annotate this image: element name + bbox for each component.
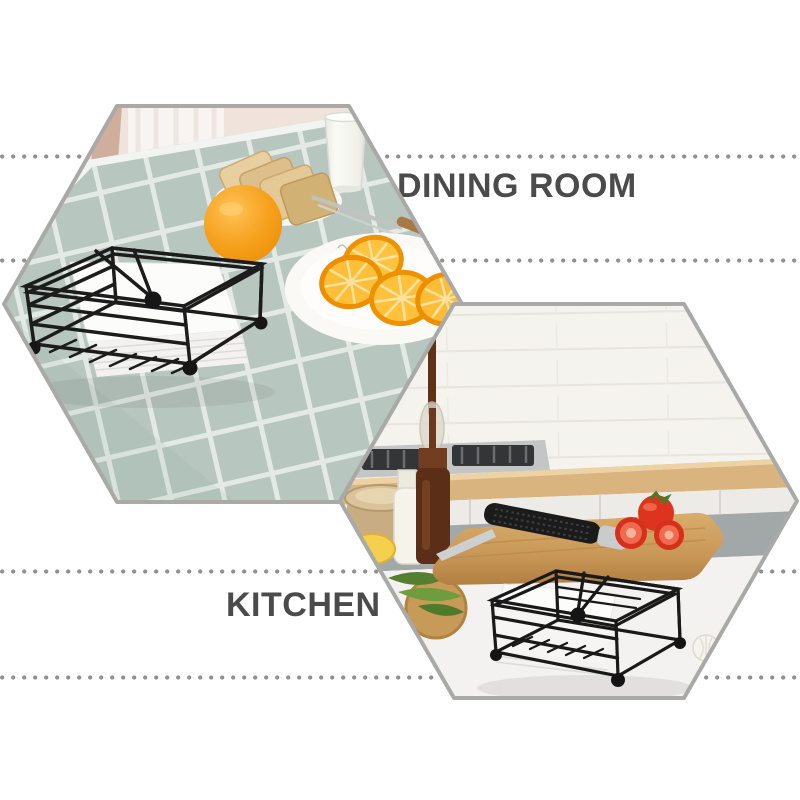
- napkin-holder-kitchen: [477, 571, 693, 701]
- orange: [204, 185, 282, 263]
- product-collage: DINING ROOM KITCHEN: [0, 0, 800, 800]
- hexagon-photos: [0, 0, 800, 800]
